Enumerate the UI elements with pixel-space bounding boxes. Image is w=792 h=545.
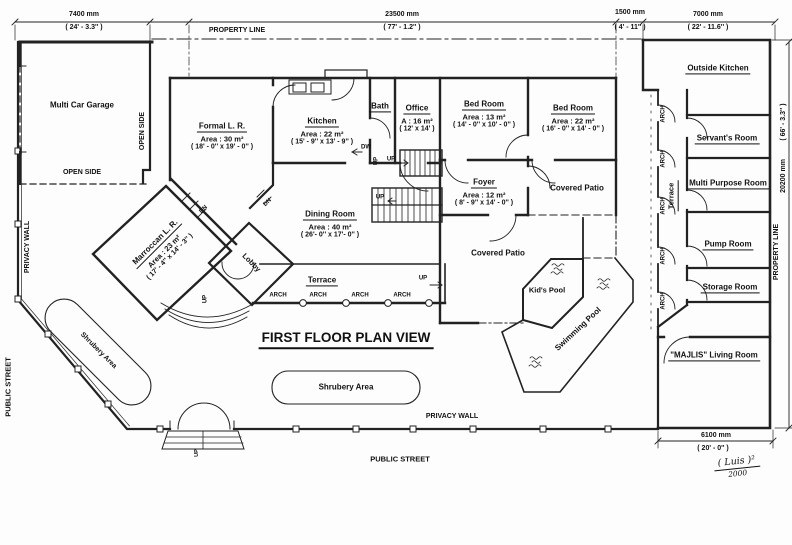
- entrance-gate: [162, 403, 244, 449]
- arch-label: ARCH: [393, 293, 410, 300]
- room-label-covered-patio-main: Covered Patio: [471, 248, 525, 257]
- up-label-stair-b: UP: [376, 195, 384, 202]
- room-label-storage-room: Storage Room: [701, 282, 760, 293]
- up-label-curved-steps: UP: [203, 295, 210, 303]
- dw-label: DW: [361, 145, 371, 152]
- floor-plan: 7400 mm ( 24' - 3.3'' ) 23500 mm ( 77' -…: [0, 0, 792, 545]
- room-label-terrace-right: Terrace: [668, 181, 679, 212]
- property-line-top-label: PROPERTY LINE: [209, 27, 265, 35]
- dim-20200-ft: ( 66' - 3.3'' ): [780, 103, 788, 140]
- arch-label: ARCH: [661, 105, 668, 122]
- page-title: FIRST FLOOR PLAN VIEW: [259, 330, 434, 346]
- dim-20200-mm: 20200 mm: [780, 159, 788, 193]
- pools: [502, 258, 633, 392]
- room-label-office: Office A : 16 m² ( 12' x 14' ): [399, 98, 434, 133]
- shrubery-area-bottom-label: Shrubery Area: [319, 382, 374, 391]
- room-label-kids-pool: Kid's Pool: [529, 287, 565, 296]
- room-label-bath: Bath: [369, 101, 391, 112]
- arch-label: ARCH: [661, 292, 668, 309]
- dim-23500-ft: ( 77' - 1.2'' ): [383, 24, 420, 32]
- room-label-servants-room: Servant's Room: [695, 133, 760, 144]
- privacy-wall-bottom-label: PRIVACY WALL: [426, 413, 478, 421]
- dim-1500-ft: ( 4' - 11'' ): [614, 24, 645, 32]
- dim-6100-mm: 6100 mm: [701, 432, 731, 440]
- property-line-right-label: PROPERTY LINE: [773, 224, 781, 280]
- room-label-multi-purpose-room: Multi Purpose Room: [687, 178, 769, 189]
- right-wing-walls: [643, 40, 770, 428]
- room-label-formal-lr: Formal L. R. Area : 30 m² ( 18' - 0'' x …: [191, 116, 253, 151]
- dim-1500-mm: 1500 mm: [615, 9, 645, 17]
- room-label-covered-patio-upper: Covered Patio: [550, 183, 604, 192]
- garage-walls: [20, 42, 152, 184]
- up-label-gate: UP: [194, 449, 200, 457]
- dim-23500-mm: 23500 mm: [385, 11, 419, 19]
- room-label-foyer: Foyer Area : 12 m² ( 8' - 9'' x 14' - 0'…: [455, 172, 513, 207]
- up-label-terrace: UP: [419, 276, 427, 283]
- privacy-wall-left-label: PRIVACY WALL: [24, 221, 32, 273]
- arch-label: ARCH: [661, 247, 668, 264]
- dim-7400-mm: 7400 mm: [69, 11, 99, 19]
- room-label-bedroom-2: Bed Room Area : 22 m² ( 16' - 0'' x 14' …: [542, 98, 604, 133]
- room-label-garage: Multi Car Garage: [50, 100, 114, 109]
- arch-label: ARCH: [269, 293, 286, 300]
- open-side-right-label: OPEN SIDE: [139, 112, 147, 150]
- room-label-kitchen: Kitchen Area : 22 m² ( 15' - 9'' x 13' -…: [291, 111, 353, 146]
- dim-7000-ft: ( 22' - 11.6'' ): [688, 24, 729, 32]
- room-label-bedroom-1: Bed Room Area : 13 m² ( 14' - 0'' x 10' …: [453, 94, 515, 129]
- dim-7000-mm: 7000 mm: [693, 11, 723, 19]
- up-label-kitchen-stair: UP: [374, 157, 381, 165]
- room-label-dining: Dining Room Area : 40 m² ( 26'- 0'' x 17…: [301, 204, 359, 239]
- room-label-pump-room: Pump Room: [702, 239, 753, 250]
- open-side-bottom-label: OPEN SIDE: [63, 169, 101, 177]
- room-label-terrace-bottom: Terrace: [306, 275, 338, 286]
- arch-label: ARCH: [351, 293, 368, 300]
- arch-label: ARCH: [661, 150, 668, 167]
- dimension-lines: [12, 19, 792, 448]
- arch-label: ARCH: [309, 293, 326, 300]
- public-street-left-label: PUBLIC STREET: [5, 357, 14, 417]
- room-label-outside-kitchen: Outside Kitchen: [685, 63, 750, 74]
- arch-label: ARCH: [661, 197, 668, 214]
- dim-7400-ft: ( 24' - 3.3'' ): [65, 24, 102, 32]
- public-street-bottom-label: PUBLIC STREET: [370, 456, 430, 465]
- room-label-majlis: "MAJLIS" Living Room: [668, 350, 760, 361]
- up-label-stair-a: UP: [387, 157, 395, 164]
- terrace-walls: [253, 264, 445, 306]
- stairs: [352, 149, 442, 222]
- dim-6100-ft: ( 20' - 0'' ): [697, 445, 728, 453]
